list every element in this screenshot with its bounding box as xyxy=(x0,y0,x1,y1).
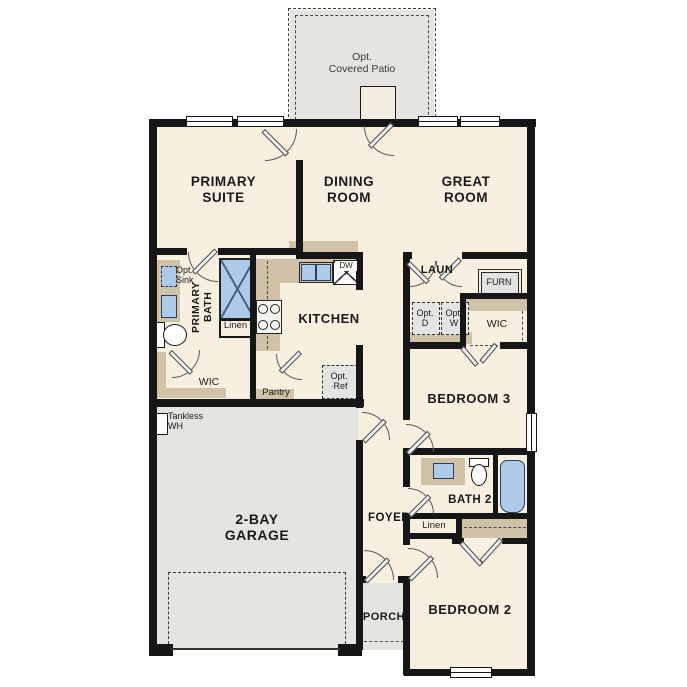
wall-exterior-left xyxy=(149,119,157,656)
wall-primarysuite-dining xyxy=(296,160,303,255)
wall-primarysuite-bottom-right xyxy=(218,248,303,255)
wall-garage-top xyxy=(149,399,364,407)
bed2-closet-dashline xyxy=(464,527,526,528)
label-furn: FURN xyxy=(481,274,517,290)
garage-door-apron xyxy=(168,572,346,649)
stove-burner xyxy=(270,304,280,314)
kitchen-sink-left-basin xyxy=(301,264,316,281)
label-opt-ref: Opt. ·Ref xyxy=(322,367,356,395)
garage-door-line xyxy=(170,648,340,650)
window-bedroom3 xyxy=(526,413,537,452)
label-pantry: Pantry xyxy=(256,387,296,399)
wall-dining-bottom xyxy=(296,252,360,259)
bath2-toilet-bowl xyxy=(471,464,487,486)
room-label-dining: DINING ROOM xyxy=(308,172,390,208)
primary-toilet-bowl xyxy=(163,324,187,346)
room-label-bath2: BATH 2 xyxy=(435,494,505,508)
wall-bed2-bottom-left xyxy=(404,669,452,676)
room-label-garage: 2-BAY GARAGE xyxy=(186,508,328,546)
window-primary-suite-2 xyxy=(237,116,284,127)
wall-wic2-top xyxy=(462,293,535,299)
wall-bed2-bottom-right xyxy=(488,669,535,676)
label-wic2: WIC xyxy=(475,317,519,331)
wall-primarysuite-bottom-left xyxy=(149,248,187,255)
wall-garage-bottom-left-stub xyxy=(149,644,173,656)
label-opt-sink: Opt. Sink xyxy=(176,263,210,287)
floor-plan: Opt. Covered Patio PRIMARY SUITE DINING … xyxy=(0,0,687,687)
room-label-patio: Opt. Covered Patio xyxy=(299,48,425,78)
stove-burner xyxy=(270,320,280,330)
label-tankless-wh: Tankless WH xyxy=(168,409,226,433)
window-great-room-2 xyxy=(460,116,500,127)
room-label-kitchen: KITCHEN xyxy=(294,311,364,327)
room-label-bedroom2: BEDROOM 2 xyxy=(410,602,530,618)
wall-laundry-bottom-right xyxy=(500,342,535,349)
primary-sink-basin xyxy=(161,295,177,318)
stove xyxy=(256,300,282,334)
wall-kitchen-right-top xyxy=(356,252,363,290)
stove-burner xyxy=(258,320,268,330)
stove-burner xyxy=(258,304,268,314)
room-label-porch: PORCH xyxy=(361,610,407,624)
room-label-laundry: LAUN xyxy=(413,263,461,277)
label-wic1: WIC xyxy=(188,375,230,389)
window-bedroom2 xyxy=(450,667,492,678)
bath2-sink-basin xyxy=(433,463,454,479)
room-label-bedroom3: BEDROOM 3 xyxy=(408,391,530,407)
wall-closet-bottom-right-stub xyxy=(502,538,535,544)
wall-greatroom-bottom-left-stub xyxy=(403,252,412,259)
wic1-shelf-bottom xyxy=(156,388,226,398)
wall-hall-right-mid xyxy=(403,452,410,487)
wall-bed2-left xyxy=(403,578,410,675)
wall-laundry-bottom-left xyxy=(403,342,462,349)
room-label-great: GREAT ROOM xyxy=(420,172,512,208)
wic2-shelf xyxy=(466,299,528,311)
label-opt-dryer: Opt. D xyxy=(412,305,438,331)
label-opt-washer: Opt. W xyxy=(441,305,467,331)
room-label-foyer: FOYER xyxy=(360,512,418,526)
label-linen1: Linen xyxy=(219,320,252,333)
label-dw: DW xyxy=(335,261,357,271)
label-linen2: Linen xyxy=(413,520,455,532)
room-label-primary-suite: PRIMARY SUITE xyxy=(166,172,281,208)
wall-linen2-bottom xyxy=(410,533,458,539)
wall-greatroom-bottom-right xyxy=(462,252,535,259)
kitchen-sink-right-basin xyxy=(316,264,331,281)
porch-edge-dashline xyxy=(364,641,404,642)
window-great-room-1 xyxy=(418,116,458,127)
optional-sink-basin xyxy=(161,266,177,287)
window-primary-suite-1 xyxy=(186,116,233,127)
